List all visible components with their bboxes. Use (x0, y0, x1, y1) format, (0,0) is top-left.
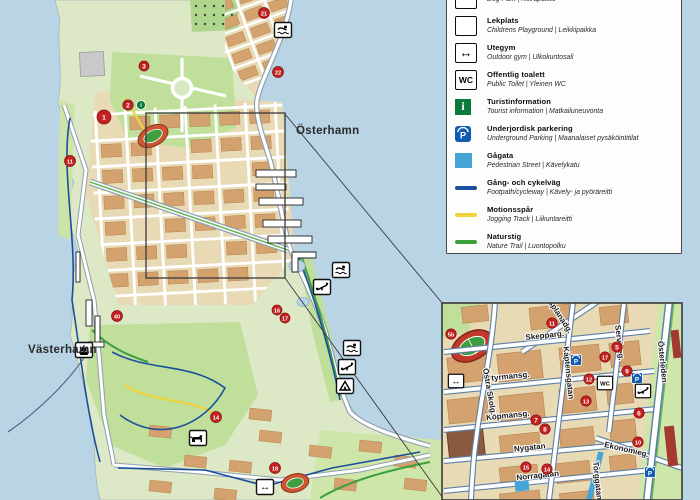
svg-text:16: 16 (274, 308, 280, 314)
svg-text:WC: WC (600, 381, 611, 387)
cemetery-dot (213, 14, 215, 16)
svg-text:21: 21 (261, 11, 267, 17)
red-marker-11: 11 (65, 156, 76, 167)
legend-item-nature-trail: NaturstigNature Trail | Luontopolku (455, 228, 675, 255)
svg-text:P: P (635, 376, 639, 383)
building (102, 170, 123, 184)
red-marker-12: 12 (584, 374, 594, 384)
building (166, 244, 187, 258)
svg-text:13: 13 (583, 399, 589, 405)
cemetery-dot (204, 14, 206, 16)
cemetery-dot (195, 14, 197, 16)
legend-title: Gång- och cykelväg (487, 178, 675, 187)
building (461, 305, 489, 324)
red-marker-40: 40 (112, 311, 123, 322)
legend-item-outdoor-gym: ↔UtegymOutdoor gym | Ulkokuntosali (455, 39, 675, 66)
svg-text:6: 6 (637, 410, 641, 417)
playground-icon (455, 16, 487, 36)
red-marker-2: 2 (123, 100, 133, 110)
wc-icon: WC (455, 70, 487, 90)
legend-title: Utegym (487, 43, 675, 52)
parking-icon: P (455, 126, 487, 142)
legend-title: Offentlig toalett (487, 70, 675, 79)
svg-text:7: 7 (534, 417, 538, 424)
tourist-map-image: ↔ 1231121224016171418i ÖsterhamnVästerha… (0, 0, 700, 500)
legend-item-tourist-information: iTuristinformationTourist information | … (455, 93, 675, 120)
building (106, 247, 127, 261)
cemetery-dot (204, 5, 206, 7)
legend-item-dog-park: Dog Park | Koirapuisto (455, 0, 675, 12)
dog-park-icon (455, 0, 487, 9)
roundabout (173, 79, 192, 98)
cemetery-dot (222, 14, 224, 16)
svg-text:15: 15 (523, 465, 529, 471)
svg-text:8: 8 (543, 426, 547, 433)
building (404, 478, 427, 491)
swim-icon (344, 341, 361, 356)
legend-subtitle: Dog Park | Koirapuisto (487, 0, 675, 4)
building (162, 166, 183, 180)
cemetery-dot (195, 5, 197, 7)
gym-icon: ↔ (448, 374, 463, 388)
svg-text:10: 10 (635, 440, 641, 446)
outdoor-gym-icon: ↔ (455, 43, 487, 63)
svg-text:40: 40 (114, 314, 120, 320)
info-icon: i (455, 99, 487, 115)
building (164, 192, 185, 206)
red-marker-11: 11 (547, 318, 557, 328)
svg-text:P: P (460, 130, 466, 140)
building (138, 272, 159, 286)
legend-title: Naturstig (487, 232, 675, 241)
building (224, 189, 245, 203)
svg-text:P: P (648, 470, 652, 477)
svg-text:↔: ↔ (452, 376, 461, 386)
red-marker-14: 14 (211, 412, 222, 423)
legend-title: Turistinformation (487, 97, 675, 106)
legend-item-playground: LekplatsChildrens Playground | Leikkipai… (455, 12, 675, 39)
red-marker-21: 21 (259, 8, 270, 19)
red-marker-13: 13 (581, 396, 591, 406)
building (136, 246, 157, 260)
building (214, 488, 237, 500)
gym-icon: ↔ (257, 480, 274, 495)
svg-text:11: 11 (67, 159, 73, 165)
building (149, 480, 172, 493)
tent-icon (337, 379, 354, 394)
red-marker-15: 15 (521, 462, 531, 472)
svg-text:22: 22 (275, 70, 281, 76)
cemetery-dot (222, 23, 224, 25)
svg-text:9: 9 (625, 368, 629, 375)
svg-text:5b: 5b (448, 332, 455, 338)
line-nature-icon (455, 240, 487, 244)
legend-subtitle: Childrens Playground | Leikkipaikka (487, 26, 675, 35)
line-jogging-icon (455, 213, 487, 217)
legend-title: Gågata (487, 151, 675, 160)
svg-text:17: 17 (282, 316, 288, 322)
building (168, 270, 189, 284)
svg-text:5: 5 (615, 344, 619, 351)
red-marker-1: 1 (97, 110, 111, 124)
legend-subtitle: Footpath/cycleway | Kävely- ja pyöräreit… (487, 188, 675, 197)
swatch-pedestrian-icon (455, 153, 487, 168)
red-marker-7: 7 (531, 415, 541, 425)
red-marker-16: 16 (272, 305, 282, 315)
building (198, 269, 219, 283)
red-marker-6: 6 (634, 408, 644, 418)
building (132, 168, 153, 182)
svg-text:1: 1 (102, 114, 106, 121)
building (226, 241, 247, 255)
legend-title: Lekplats (487, 16, 675, 25)
cemetery-dot (222, 5, 224, 7)
legend-title: Underjordisk parkering (487, 124, 675, 133)
building (309, 445, 332, 458)
building (191, 139, 212, 153)
building (192, 165, 213, 179)
building (149, 425, 172, 438)
legend-subtitle: Underground Parking | Maanalaiset pysäkö… (487, 134, 675, 143)
legend-item-underground-parking: PUnderjordisk parkeringUnderground Parki… (455, 120, 675, 147)
wc-icon: WC (597, 376, 612, 390)
playground-icon (339, 360, 356, 375)
parking-icon: P (632, 373, 643, 384)
building (259, 430, 282, 443)
legend-item-pedestrian-street: GågataPedestrian Street | Kävelykatu (455, 147, 675, 174)
building (194, 191, 215, 205)
cemetery-dot (213, 5, 215, 7)
legend-item-footpath-cycleway: Gång- och cykelvägFootpath/cycleway | Kä… (455, 174, 675, 201)
building (184, 455, 207, 468)
legend-subtitle: Tourist information | Matkailuneuvonta (487, 107, 675, 116)
parking-icon: P (571, 355, 582, 366)
svg-text:3: 3 (142, 63, 146, 70)
red-marker-17: 17 (280, 313, 290, 323)
svg-text:17: 17 (602, 355, 608, 361)
cemetery-dot (204, 23, 206, 25)
line-footpath-icon (455, 186, 487, 190)
legend-subtitle: Public Toilet | Yleinen WC (487, 80, 675, 89)
building (104, 195, 125, 209)
building (165, 218, 186, 232)
building (249, 408, 272, 421)
red-marker-22: 22 (273, 67, 284, 78)
dog-icon (190, 431, 207, 446)
legend-subtitle: Nature Trail | Luontopolku (487, 242, 675, 251)
red-marker-14: 14 (542, 464, 552, 474)
red-marker-5b: 5b (446, 329, 456, 339)
swim-icon (333, 263, 350, 278)
svg-text:18: 18 (272, 466, 278, 472)
cemetery-dot (213, 23, 215, 25)
building (105, 221, 126, 235)
red-marker-17: 17 (600, 352, 610, 362)
svg-text:↔: ↔ (260, 482, 270, 493)
svg-text:12: 12 (586, 377, 592, 383)
red-marker-5: 5 (612, 342, 622, 352)
building (101, 144, 122, 158)
red-marker-10: 10 (633, 437, 643, 447)
svg-text:14: 14 (213, 415, 220, 421)
svg-text:14: 14 (544, 467, 551, 473)
map-legend: Dog Park | Koirapuisto LekplatsChildrens… (446, 0, 682, 254)
red-marker-3: 3 (139, 61, 149, 71)
building (189, 113, 210, 127)
tourist-info-dot: i (137, 101, 146, 110)
svg-text:P: P (574, 358, 578, 365)
gray-building (79, 51, 104, 76)
parking-icon: P (645, 467, 656, 478)
building (221, 137, 242, 151)
red-marker-8: 8 (540, 424, 550, 434)
swim-icon (275, 23, 292, 38)
cemetery-dot (195, 23, 197, 25)
playground-icon (314, 280, 331, 295)
water-label-0: Österhamn (296, 124, 359, 137)
red-marker-9: 9 (622, 366, 632, 376)
legend-subtitle: Jogging Track | Liikuntareitti (487, 215, 675, 224)
legend-subtitle: Pedestrian Street | Kävelykatu (487, 161, 675, 170)
legend-item-jogging-track: MotionsspårJogging Track | Liikuntareitt… (455, 201, 675, 228)
legend-item-public-toilet: WCOffentlig toalettPublic Toilet | Ylein… (455, 66, 675, 93)
inset-map: Esplanadg.Skepparg.Styrmansg.Köpmansg.Ny… (442, 294, 682, 500)
building (229, 460, 252, 473)
playground-icon (635, 384, 650, 398)
building (359, 440, 382, 453)
svg-text:11: 11 (549, 321, 555, 327)
legend-subtitle: Outdoor gym | Ulkokuntosali (487, 53, 675, 62)
svg-text:2: 2 (126, 102, 130, 109)
red-marker-18: 18 (270, 463, 281, 474)
building (228, 267, 249, 281)
legend-title: Motionsspår (487, 205, 675, 214)
water-label-1: Västerhamn (28, 344, 97, 356)
